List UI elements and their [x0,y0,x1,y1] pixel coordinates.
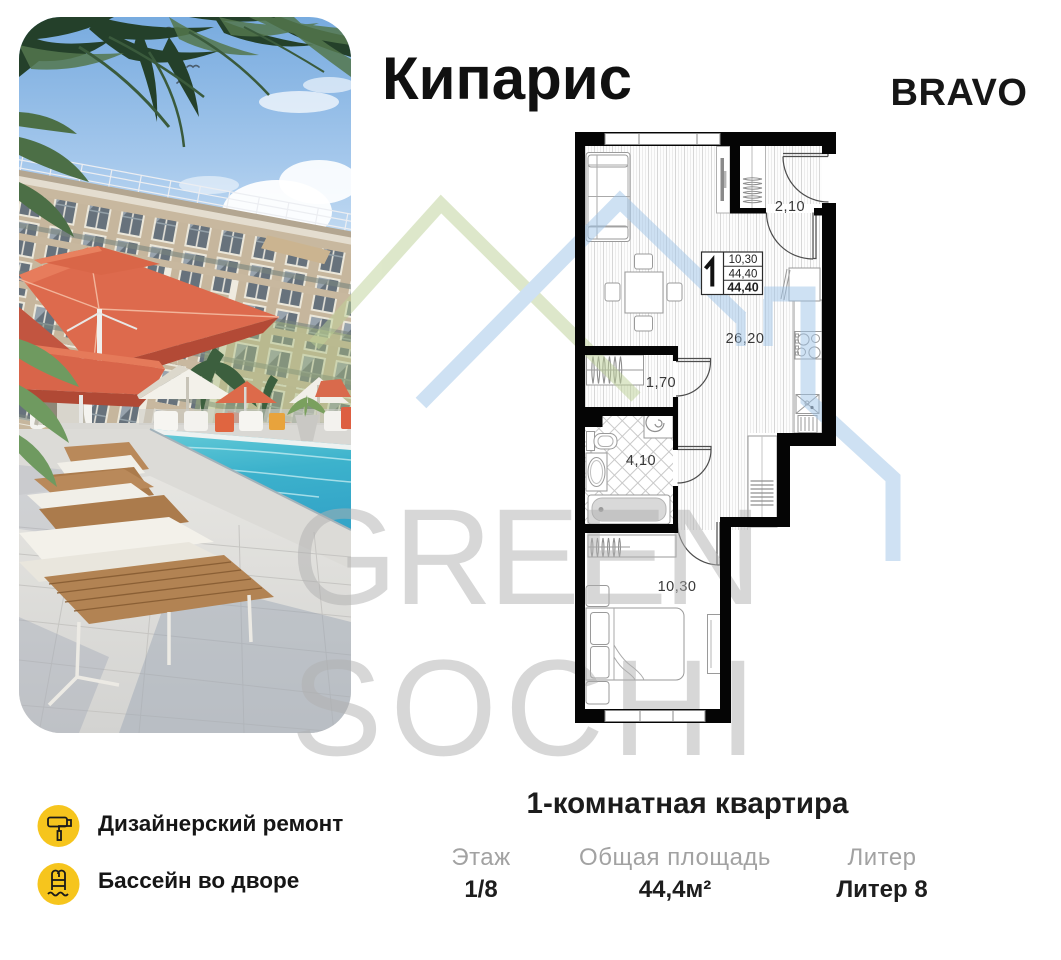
svg-text:44,40: 44,40 [729,269,758,281]
svg-text:10,30: 10,30 [729,254,758,266]
svg-text:44,40: 44,40 [727,281,758,295]
